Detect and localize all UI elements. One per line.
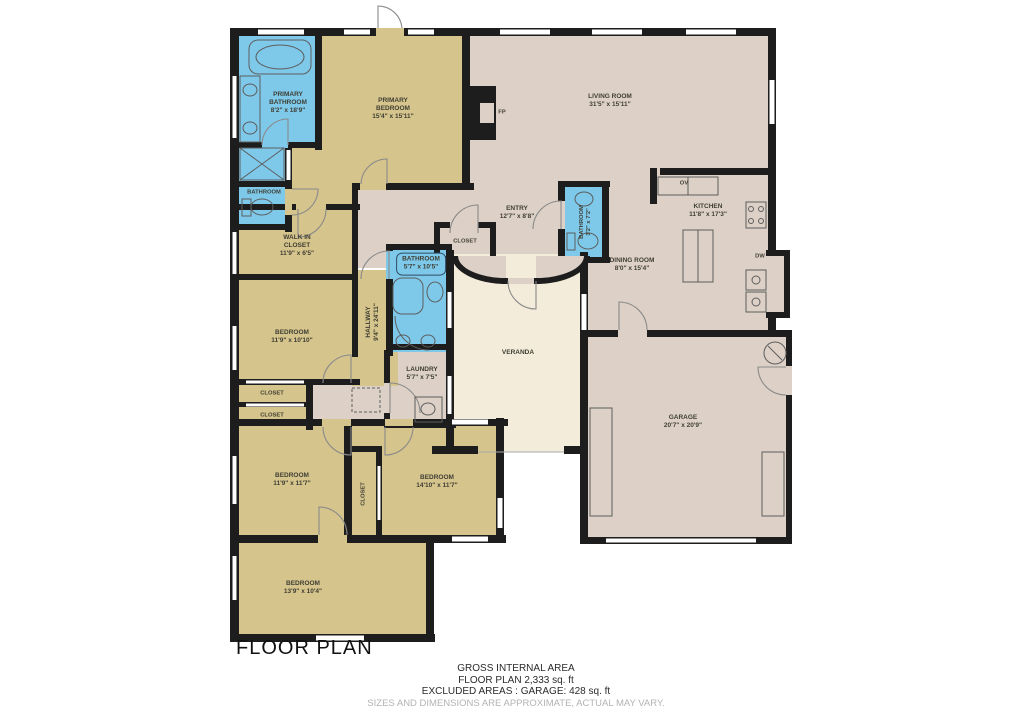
window (232, 76, 237, 138)
wall-segment (432, 446, 478, 454)
label-entry-closet: CLOSET (453, 238, 477, 245)
label-veranda: VERANDA (502, 349, 534, 357)
door-opening (385, 419, 413, 426)
label-walk-in-closet: WALK IN CLOSET11'9" x 6'5" (272, 234, 322, 258)
window (497, 498, 503, 528)
label-bedroom3: BEDROOM14'10" x 11'7" (416, 474, 457, 490)
window (581, 294, 587, 330)
hall-nook-floor (290, 148, 356, 208)
label-closet-v: CLOSET (360, 482, 367, 506)
door-opening (376, 28, 404, 36)
label-dining-room: DINING ROOM8'0" x 15'4" (610, 257, 655, 273)
wall-segment (580, 330, 792, 337)
garage-floor (586, 334, 788, 540)
door-opening (360, 183, 386, 190)
window (246, 403, 304, 407)
window (232, 326, 237, 370)
window (452, 536, 488, 542)
footer-notes: GROSS INTERNAL AREA FLOOR PLAN 2,333 sq.… (367, 663, 664, 709)
label-bedroom2: BEDROOM11'9" x 11'7" (273, 472, 310, 488)
wall-segment (768, 28, 776, 242)
window (500, 29, 550, 35)
wall-segment (344, 446, 382, 452)
label-oven: OV (680, 180, 688, 187)
label-hall-bathroom: BATHROOM5'7" x 10'5" (396, 253, 446, 276)
wall-segment (464, 86, 496, 140)
wall-segment (602, 181, 609, 263)
primary-bath-floor (236, 32, 318, 146)
label-bedroom1: BEDROOM11'9" x 10'10" (271, 329, 312, 345)
door-opening (386, 251, 393, 279)
wall-segment (315, 28, 322, 150)
footer-line-3: EXCLUDED AREAS : GARAGE: 428 sq. ft (367, 686, 664, 698)
label-garage: GARAGE20'7" x 20'9" (664, 414, 702, 430)
label-laundry: LAUNDRY5'7" x 7'5" (406, 366, 438, 382)
window (447, 376, 452, 414)
door-opening (450, 222, 478, 228)
wall-segment (238, 181, 292, 187)
front-door-arc (378, 6, 402, 28)
label-closet-a: CLOSET (260, 390, 284, 397)
wall-segment (386, 344, 452, 350)
door-opening (322, 419, 351, 426)
label-closet-b: CLOSET (260, 412, 284, 419)
window (592, 29, 642, 35)
window (232, 556, 237, 600)
wall-segment (786, 332, 792, 544)
wall-segment (650, 168, 657, 204)
window (447, 292, 452, 328)
door-opening (618, 330, 647, 337)
window (286, 150, 291, 180)
label-bedroom4: BEDROOM13'9" x 10'4" (284, 580, 322, 596)
label-dishwasher: DW (755, 253, 765, 260)
window (258, 29, 304, 35)
door-opening (558, 201, 565, 229)
label-living-room: LIVING ROOM31'5" x 15'11" (588, 93, 632, 109)
wall-segment (230, 274, 358, 280)
label-small-bathroom: BATHROOM (247, 189, 281, 196)
bedroom4-floor (234, 540, 430, 636)
window (686, 29, 736, 35)
wall-segment (564, 446, 588, 454)
window (408, 29, 434, 35)
wall-segment (386, 244, 452, 250)
label-primary-bathroom: PRIMARY BATHROOM8'2" x 18'9" (261, 91, 315, 115)
floor-plan: PRIMARY BATHROOM8'2" x 18'9" BATHROOM PR… (0, 0, 1024, 724)
window (232, 456, 237, 504)
wall-segment (344, 424, 352, 542)
label-powder-bathroom: BATHROOM3'2" x 7'2" (579, 205, 593, 239)
window (232, 232, 237, 274)
wall-segment (352, 185, 358, 357)
footer-line-1: GROSS INTERNAL AREA (367, 663, 664, 675)
window (246, 380, 304, 384)
window (377, 466, 381, 520)
door-opening (296, 204, 326, 210)
window (769, 80, 775, 124)
door-opening (786, 366, 792, 395)
window (344, 29, 370, 35)
label-kitchen: KITCHEN11'8" x 17'3" (689, 203, 727, 219)
label-hallway: HALLWAY9'4" x 24'11" (365, 303, 381, 341)
footer-line-4: SIZES AND DIMENSIONS ARE APPROXIMATE, AC… (367, 698, 664, 710)
footer-line-2: FLOOR PLAN 2,333 sq. ft (367, 675, 664, 687)
window (606, 538, 756, 543)
wall-segment (426, 535, 434, 642)
label-entry: ENTRY12'7" x 8'8" (500, 205, 535, 221)
label-fireplace: FP (498, 109, 505, 116)
door-opening (318, 535, 347, 543)
door-opening (285, 189, 292, 215)
wall-segment (230, 204, 360, 210)
wall-segment (306, 379, 313, 430)
door-opening (384, 383, 390, 413)
kitchen-bump-floor (745, 252, 788, 318)
label-primary-bedroom: PRIMARY BEDROOM15'4" x 15'11" (366, 97, 420, 121)
wall-segment (660, 168, 772, 175)
wall-segment (230, 224, 292, 230)
door-opening (508, 278, 534, 284)
door-opening (262, 142, 288, 148)
shower-floor (236, 146, 288, 184)
page-title: FLOOR PLAN (236, 637, 373, 660)
wall-segment (784, 250, 790, 318)
window (452, 419, 488, 425)
